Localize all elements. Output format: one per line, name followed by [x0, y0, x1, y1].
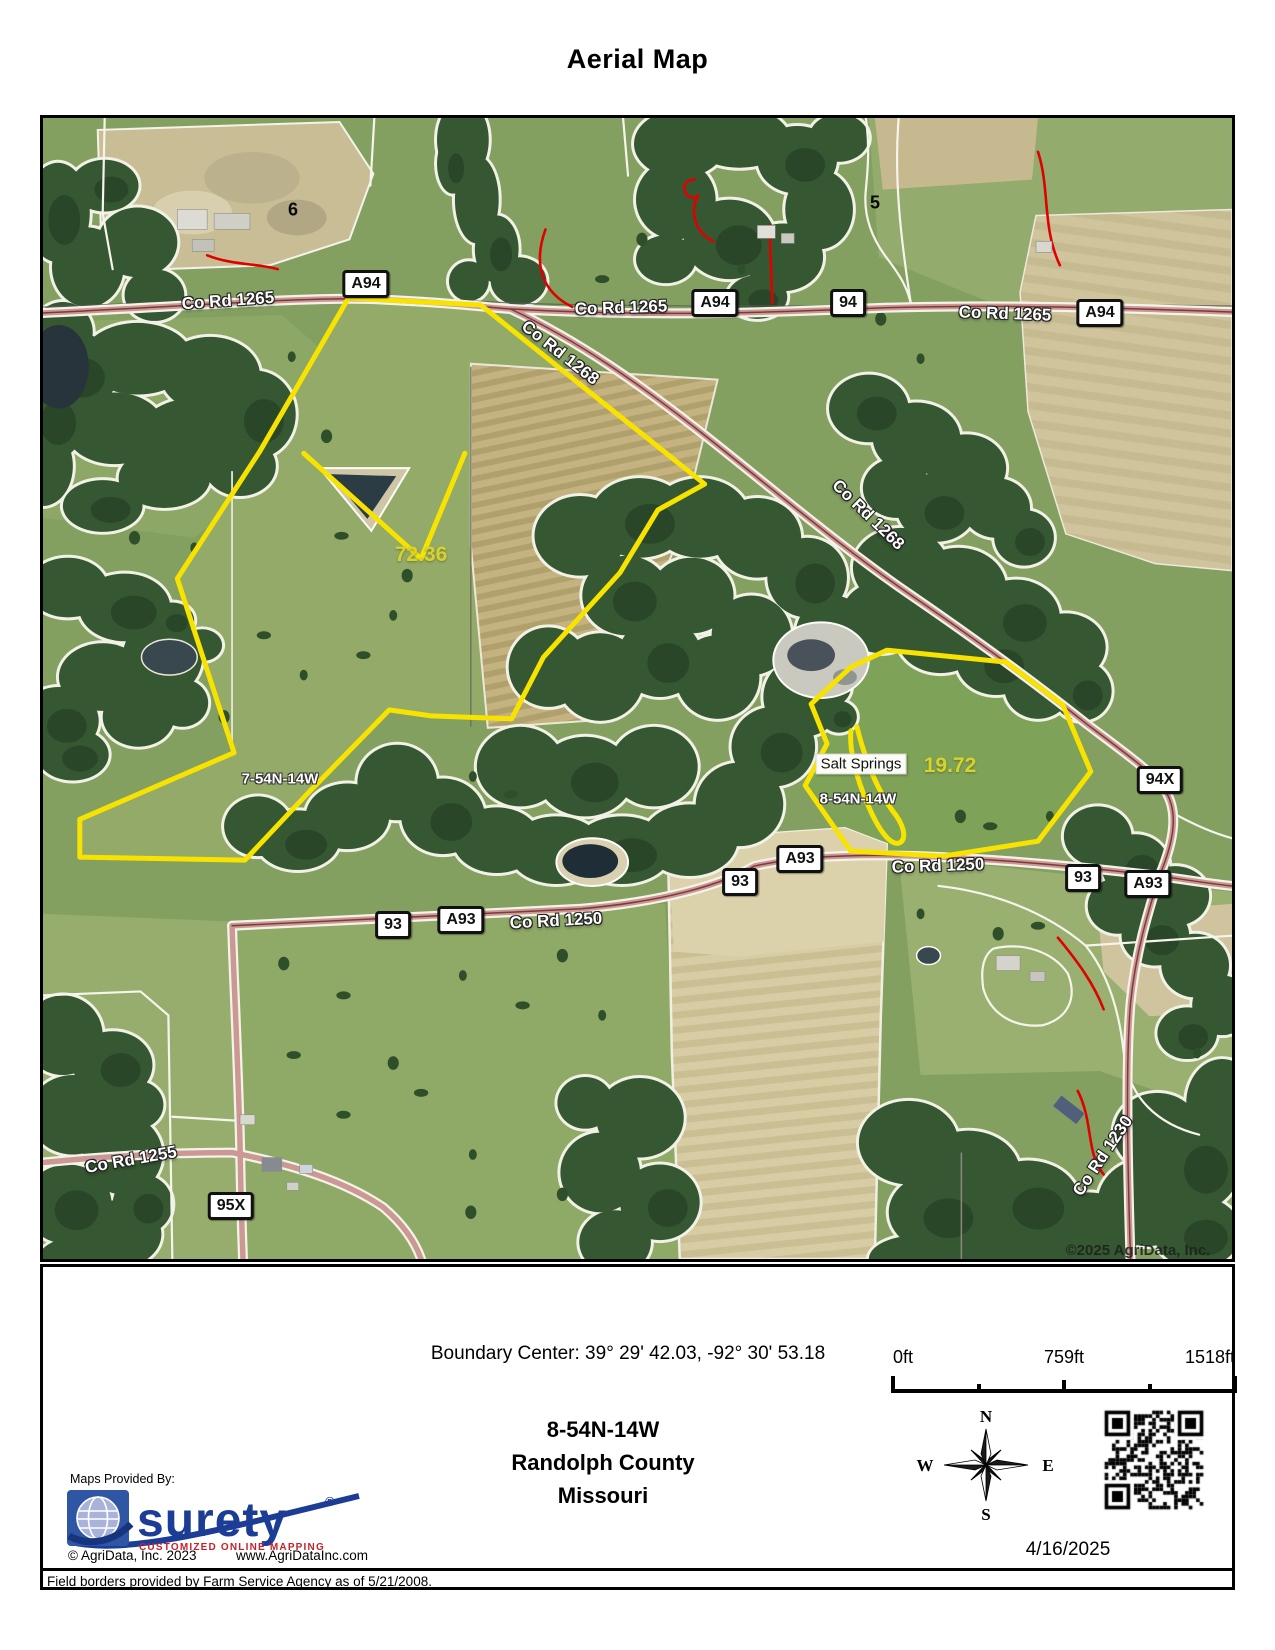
maps-provided-by-label: Maps Provided By:	[70, 1472, 407, 1486]
fsa-disclaimer: Field borders provided by Farm Service A…	[47, 1574, 432, 1589]
agridata-copyright: © AgriData, Inc. 2023	[68, 1548, 197, 1563]
road-badge-93: 93	[722, 868, 758, 896]
road-name-co-rd-1250: Co Rd 1250	[891, 854, 984, 877]
location-block: 8-54N-14W Randolph County Missouri	[353, 1413, 853, 1512]
section-label-7-54n-14w: 7-54N-14W	[242, 771, 319, 788]
road-badge-a93: A93	[776, 845, 823, 873]
compass-south-label: S	[981, 1505, 990, 1524]
registered-mark: ®	[325, 1494, 335, 1509]
road-name-co-rd-1268: Co Rd 1268	[828, 476, 908, 555]
road-badge-95x: 95X	[208, 1192, 254, 1220]
road-name-co-rd-1230: Co Rd 1230	[1069, 1112, 1137, 1200]
poi-salt-springs: Salt Springs	[816, 754, 907, 775]
road-badge-93: 93	[1065, 864, 1101, 892]
road-badge-a93: A93	[1124, 870, 1171, 898]
scale-track	[893, 1376, 1235, 1393]
page-title: Aerial Map	[0, 44, 1275, 75]
scale-mid-label: 759ft	[1044, 1347, 1084, 1368]
road-name-co-rd-1255: Co Rd 1255	[84, 1142, 179, 1178]
map-labels-overlay: A94A9494A9494XA939393A9393A9395XCo Rd 12…	[43, 118, 1232, 1259]
road-badge-a94: A94	[691, 289, 738, 317]
surety-logo: surety ® CUSTOMIZED ONLINE MAPPING	[67, 1488, 367, 1554]
qr-code	[1101, 1407, 1207, 1513]
agridata-website[interactable]: www.AgriDataInc.com	[236, 1548, 368, 1563]
map-footer: Boundary Center: 39° 29' 42.03, -92° 30'…	[40, 1264, 1235, 1590]
boundary-center-text: Boundary Center: 39° 29' 42.03, -92° 30'…	[328, 1343, 928, 1365]
township-range: 8-54N-14W	[353, 1413, 853, 1446]
road-name-co-rd-1250: Co Rd 1250	[509, 909, 603, 934]
road-name-co-rd-1268: Co Rd 1268	[517, 317, 602, 390]
map-date: 4/16/2025	[968, 1539, 1168, 1561]
road-badge-94x: 94X	[1137, 766, 1183, 794]
state-name: Missouri	[353, 1479, 853, 1512]
road-name-co-rd-1265: Co Rd 1265	[958, 302, 1051, 325]
road-badge-a94: A94	[342, 270, 389, 298]
copyright-row: © AgriData, Inc. 2023 www.AgriDataInc.co…	[68, 1548, 468, 1563]
county-name: Randolph County	[353, 1446, 853, 1479]
road-name-co-rd-1265: Co Rd 1265	[574, 296, 667, 319]
road-badge-a93: A93	[437, 906, 484, 934]
road-badge-93: 93	[375, 911, 411, 939]
surety-wordmark: surety	[137, 1494, 287, 1547]
compass-north-label: N	[980, 1407, 993, 1426]
compass-rose-icon: N E S W	[898, 1402, 1078, 1534]
scale-bar: 0ft 759ft 1518ft	[893, 1347, 1235, 1393]
footer-divider	[43, 1568, 1232, 1571]
field-number-5: 5	[870, 193, 880, 214]
scale-start-label: 0ft	[893, 1347, 913, 1368]
road-name-co-rd-1265: Co Rd 1265	[181, 288, 275, 314]
field-number-6: 6	[288, 200, 298, 221]
parcel-acreage-72-36: 72.36	[395, 543, 448, 567]
map-watermark: ©2025 AgriData, Inc.	[1043, 1242, 1233, 1259]
road-badge-a94: A94	[1076, 299, 1123, 327]
section-label-8-54n-14w: 8-54N-14W	[820, 791, 897, 808]
road-badge-94: 94	[830, 289, 866, 317]
compass-east-label: E	[1042, 1456, 1053, 1475]
parcel-acreage-19-72: 19.72	[924, 754, 977, 778]
compass-west-label: W	[917, 1456, 934, 1475]
aerial-map: A94A9494A9494XA939393A9393A9395XCo Rd 12…	[40, 115, 1235, 1262]
scale-end-label: 1518ft	[1185, 1347, 1235, 1368]
